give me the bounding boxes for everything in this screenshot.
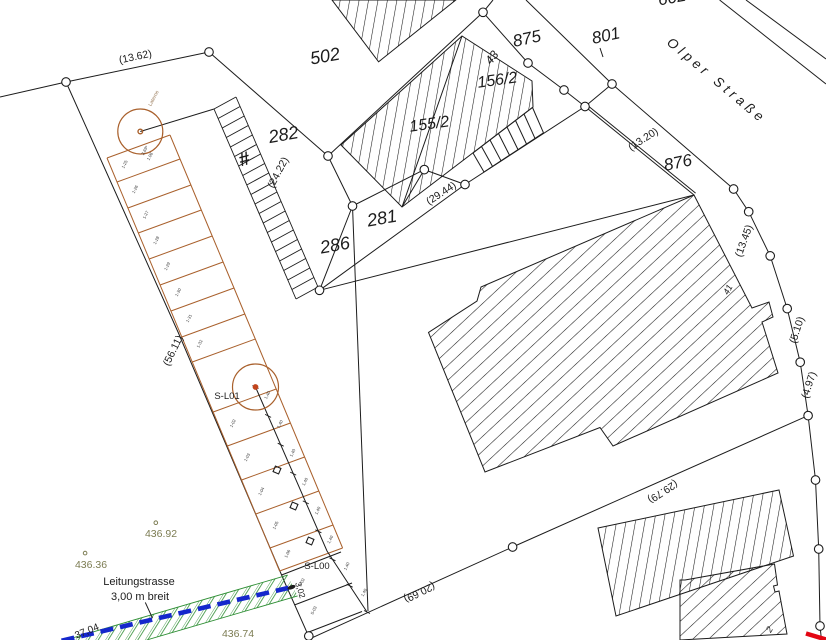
svg-text:436.74: 436.74 — [222, 628, 254, 640]
svg-text:Leitungstrasse: Leitungstrasse — [103, 576, 175, 588]
svg-text:S-L00: S-L00 — [304, 561, 329, 572]
svg-text:3,00 m breit: 3,00 m breit — [111, 591, 169, 603]
svg-text:436.92: 436.92 — [145, 528, 177, 540]
svg-text:S-L01: S-L01 — [214, 391, 239, 402]
svg-text:436.36: 436.36 — [75, 559, 107, 571]
